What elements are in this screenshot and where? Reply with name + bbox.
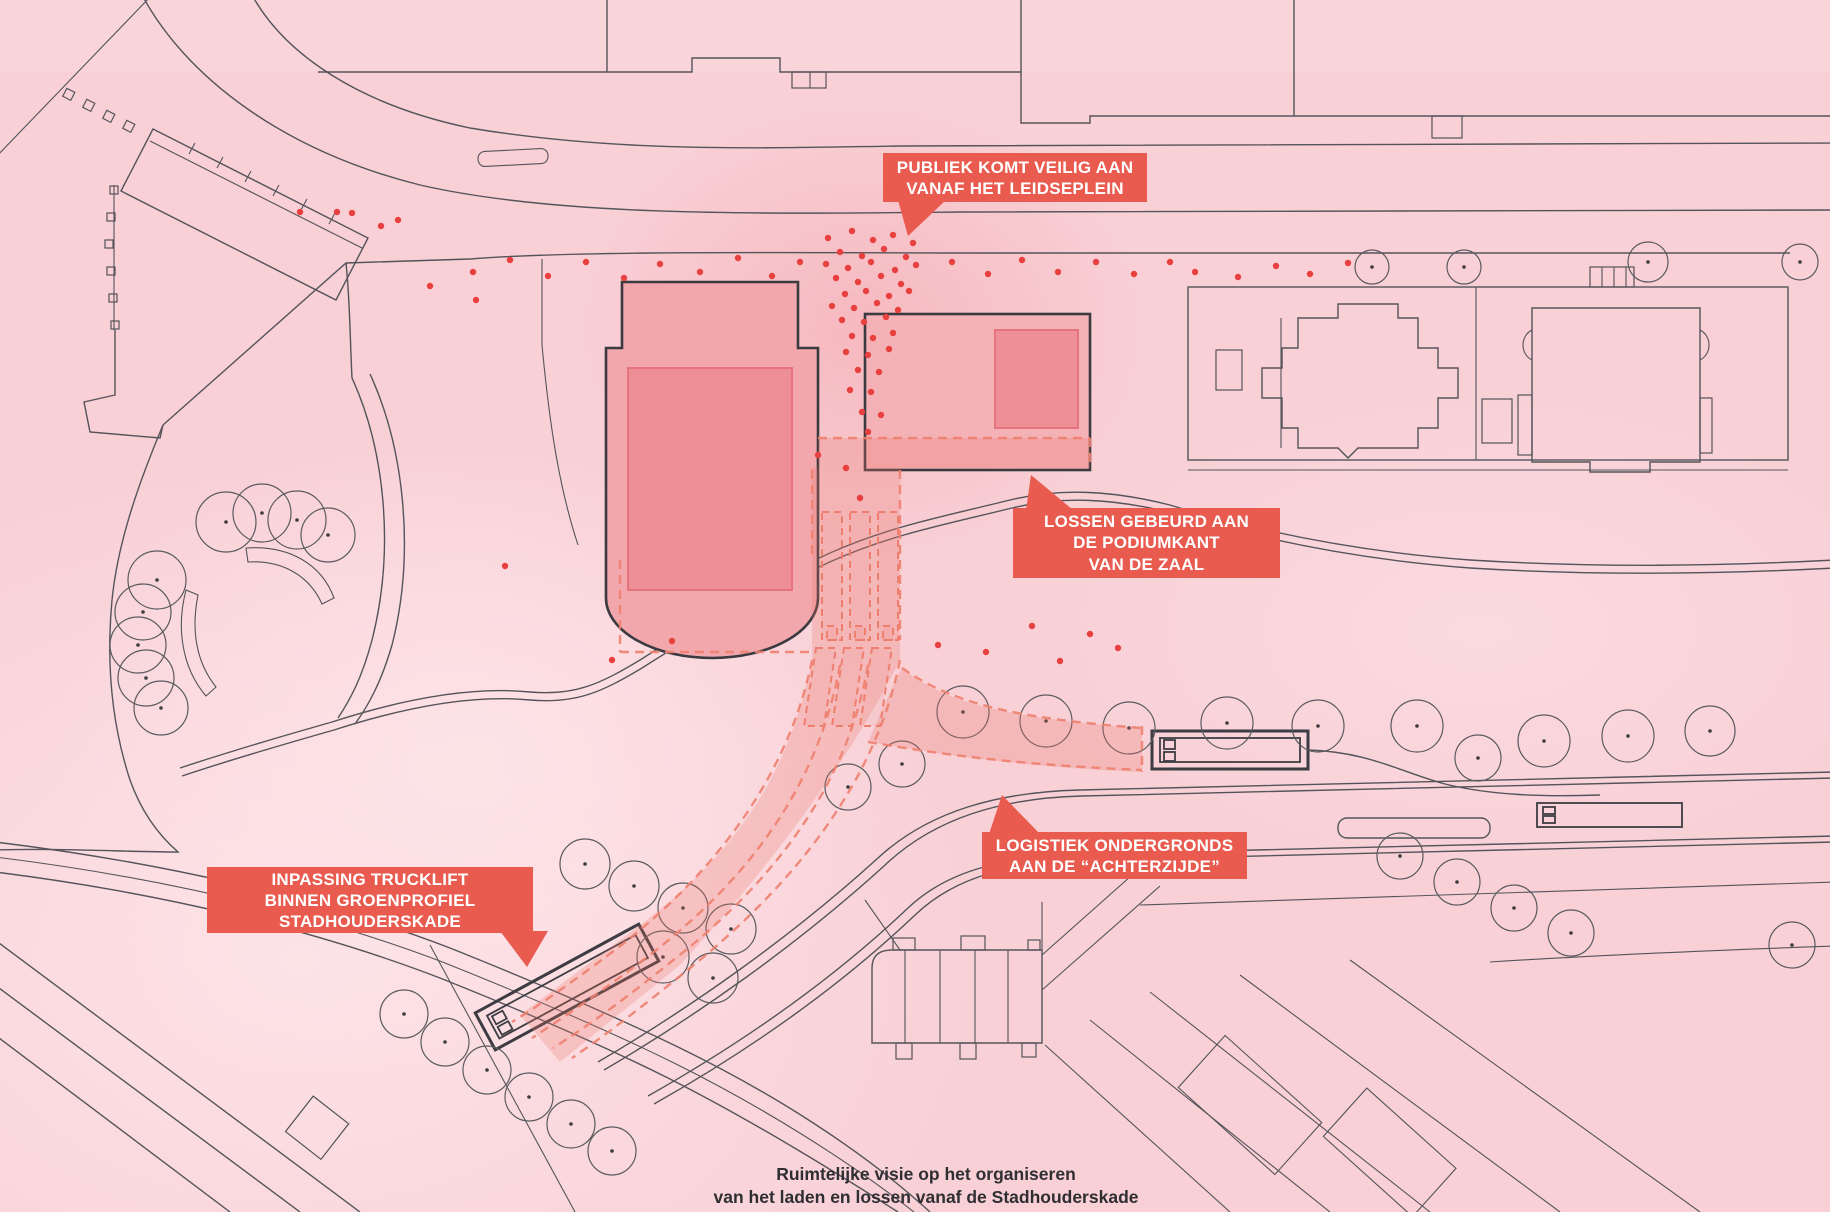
annotation-line: LOGISTIEK ONDERGRONDS <box>982 835 1247 856</box>
theater-hall-stage <box>628 368 792 590</box>
annotation-line: VAN DE ZAAL <box>1013 554 1280 576</box>
annotation-line: DE PODIUMKANT <box>1013 532 1280 554</box>
annotation-line: LOSSEN GEBEURD AAN <box>1013 511 1280 533</box>
annotation-line: BINNEN GROENPROFIEL <box>207 890 533 911</box>
caption-line-1: Ruimtelijke visie op het organiseren <box>476 1163 1376 1186</box>
annotation-inpassing-trucklift: INPASSING TRUCKLIFT BINNEN GROENPROFIEL … <box>207 867 533 933</box>
annotation-line: STADHOUDERSKADE <box>207 911 533 932</box>
truck-lifts <box>822 512 898 640</box>
annotation-lossen-podiumkant: LOSSEN GEBEURD AAN DE PODIUMKANT VAN DE … <box>1013 508 1280 578</box>
annotation-publiek-arrival: PUBLIEK KOMT VEILIG AAN VANAF HET LEIDSE… <box>883 153 1147 202</box>
figure-caption: Ruimtelijke visie op het organiseren van… <box>476 1163 1376 1209</box>
second-hall-stage <box>995 330 1078 428</box>
annotation-line: PUBLIEK KOMT VEILIG AAN <box>883 157 1147 178</box>
annotation-logistiek-ondergronds: LOGISTIEK ONDERGRONDS AAN DE “ACHTERZIJD… <box>982 832 1247 879</box>
annotation-line: VANAF HET LEIDSEPLEIN <box>883 178 1147 199</box>
annotation-line: AAN DE “ACHTERZIJDE” <box>982 856 1247 877</box>
annotation-line: INPASSING TRUCKLIFT <box>207 869 533 890</box>
site-plan-page: PUBLIEK KOMT VEILIG AAN VANAF HET LEIDSE… <box>0 0 1830 1212</box>
caption-line-2: van het laden en lossen vanaf de Stadhou… <box>476 1186 1376 1209</box>
